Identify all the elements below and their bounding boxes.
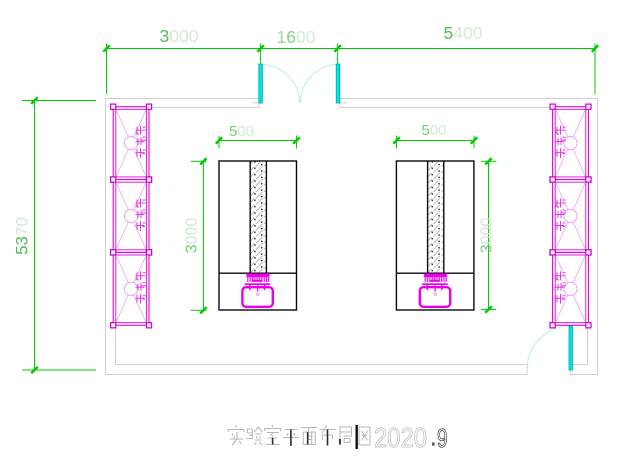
svg-text:9: 9	[437, 423, 448, 453]
svg-text:1600: 1600	[277, 27, 316, 47]
svg-text:5400: 5400	[444, 23, 483, 43]
svg-text:500: 500	[421, 122, 446, 139]
svg-text:5370: 5370	[13, 217, 32, 255]
svg-text:500: 500	[229, 123, 254, 140]
svg-text:3000: 3000	[184, 218, 201, 254]
svg-text:2020: 2020	[374, 422, 427, 453]
svg-text:3000: 3000	[479, 218, 496, 254]
svg-text:3000: 3000	[160, 26, 199, 46]
